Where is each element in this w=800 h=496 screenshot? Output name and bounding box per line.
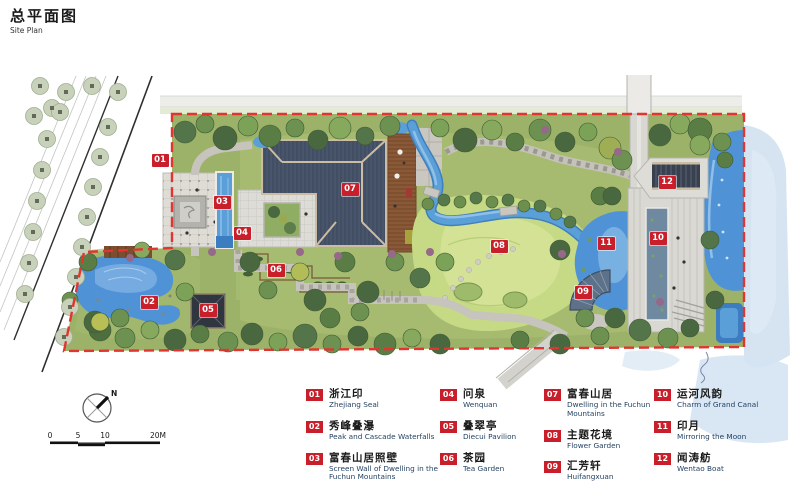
legend-labels: 秀峰叠瀑Peak and Cascade Waterfalls bbox=[329, 420, 434, 442]
legend-labels: 富春山居Dwelling in the Fuchun Mountains bbox=[567, 388, 654, 419]
legend-labels: 印月Mirroring the Moon bbox=[677, 420, 746, 442]
legend-label-en: Wentao Boat bbox=[677, 465, 724, 474]
scale-tick-20m: 20M bbox=[150, 431, 166, 440]
legend-label-en: Peak and Cascade Waterfalls bbox=[329, 433, 434, 442]
legend-item-03: 03富春山居照壁Screen Wall of Dwelling in the F… bbox=[306, 452, 440, 483]
legend-item-07: 07富春山居Dwelling in the Fuchun Mountains bbox=[544, 388, 654, 419]
plan-marker-11: 11 bbox=[598, 237, 615, 250]
scale-bar: 0 5 10 20M bbox=[48, 431, 166, 446]
legend: 01浙江印Zhejiang Seal02秀峰叠瀑Peak and Cascade… bbox=[306, 388, 782, 492]
legend-label-en: Huifangxuan bbox=[567, 473, 613, 482]
legend-label-zh: 印月 bbox=[677, 420, 746, 432]
legend-item-02: 02秀峰叠瀑Peak and Cascade Waterfalls bbox=[306, 420, 440, 442]
plan-marker-05: 05 bbox=[200, 304, 217, 317]
plan-marker-06: 06 bbox=[268, 264, 285, 277]
legend-number-badge: 02 bbox=[306, 421, 323, 433]
plaza-east bbox=[628, 188, 704, 332]
legend-column-2: 04问泉Wenquan05叠翠亭Diecui Pavilion06茶园Tea G… bbox=[440, 388, 544, 492]
legend-label-zh: 富春山居照壁 bbox=[329, 452, 440, 464]
plan-marker-10: 10 bbox=[650, 232, 667, 245]
legend-number-badge: 01 bbox=[306, 389, 323, 401]
legend-label-zh: 汇芳轩 bbox=[567, 460, 613, 472]
legend-label-en: Screen Wall of Dwelling in the Fuchun Mo… bbox=[329, 465, 440, 483]
legend-label-en: Tea Garden bbox=[463, 465, 504, 474]
legend-labels: 闻涛舫Wentao Boat bbox=[677, 452, 724, 474]
plan-marker-01: 01 bbox=[152, 154, 169, 167]
legend-number-badge: 12 bbox=[654, 453, 671, 465]
legend-label-zh: 运河风韵 bbox=[677, 388, 758, 400]
legend-labels: 问泉Wenquan bbox=[463, 388, 497, 410]
legend-label-zh: 秀峰叠瀑 bbox=[329, 420, 434, 432]
legend-label-en: Charm of Grand Canal bbox=[677, 401, 758, 410]
legend-label-zh: 主题花境 bbox=[567, 429, 620, 441]
legend-column-4: 10运河风韵Charm of Grand Canal11印月Mirroring … bbox=[654, 388, 782, 492]
legend-labels: 主题花境Flower Garden bbox=[567, 429, 620, 451]
legend-column-1: 01浙江印Zhejiang Seal02秀峰叠瀑Peak and Cascade… bbox=[306, 388, 440, 492]
plan-marker-07: 07 bbox=[342, 183, 359, 196]
plan-marker-12: 12 bbox=[659, 176, 676, 189]
legend-number-badge: 09 bbox=[544, 461, 561, 473]
legend-label-zh: 浙江印 bbox=[329, 388, 379, 400]
legend-item-11: 11印月Mirroring the Moon bbox=[654, 420, 782, 442]
legend-label-en: Dwelling in the Fuchun Mountains bbox=[567, 401, 654, 419]
legend-label-zh: 问泉 bbox=[463, 388, 497, 400]
legend-item-08: 08主题花境Flower Garden bbox=[544, 429, 654, 451]
legend-number-badge: 07 bbox=[544, 389, 561, 401]
legend-item-06: 06茶园Tea Garden bbox=[440, 452, 544, 474]
scale-tick-0: 0 bbox=[48, 431, 53, 440]
scale-tick-5: 5 bbox=[76, 431, 81, 440]
legend-labels: 富春山居照壁Screen Wall of Dwelling in the Fuc… bbox=[329, 452, 440, 483]
plan-marker-08: 08 bbox=[491, 240, 508, 253]
legend-item-05: 05叠翠亭Diecui Pavilion bbox=[440, 420, 544, 442]
legend-labels: 叠翠亭Diecui Pavilion bbox=[463, 420, 516, 442]
legend-number-badge: 05 bbox=[440, 421, 457, 433]
legend-number-badge: 04 bbox=[440, 389, 457, 401]
legend-number-badge: 11 bbox=[654, 421, 671, 433]
legend-label-zh: 茶园 bbox=[463, 452, 504, 464]
plan-marker-09: 09 bbox=[575, 286, 592, 299]
legend-number-badge: 06 bbox=[440, 453, 457, 465]
water-feature-screen-wall bbox=[216, 172, 233, 248]
site-plan-page: 总平面图 Site Plan bbox=[0, 0, 800, 496]
legend-column-3: 07富春山居Dwelling in the Fuchun Mountains08… bbox=[544, 388, 654, 492]
legend-label-en: Diecui Pavilion bbox=[463, 433, 516, 442]
plan-marker-03: 03 bbox=[214, 196, 231, 209]
legend-label-zh: 富春山居 bbox=[567, 388, 654, 400]
legend-label-zh: 闻涛舫 bbox=[677, 452, 724, 464]
plan-marker-04: 04 bbox=[234, 227, 251, 240]
legend-item-04: 04问泉Wenquan bbox=[440, 388, 544, 410]
legend-item-09: 09汇芳轩Huifangxuan bbox=[544, 460, 654, 482]
legend-labels: 浙江印Zhejiang Seal bbox=[329, 388, 379, 410]
legend-label-en: Mirroring the Moon bbox=[677, 433, 746, 442]
legend-labels: 运河风韵Charm of Grand Canal bbox=[677, 388, 758, 410]
legend-item-10: 10运河风韵Charm of Grand Canal bbox=[654, 388, 782, 410]
plan-marker-02: 02 bbox=[141, 296, 158, 309]
legend-label-en: Flower Garden bbox=[567, 442, 620, 451]
legend-item-01: 01浙江印Zhejiang Seal bbox=[306, 388, 440, 410]
compass: N bbox=[83, 389, 117, 422]
legend-item-12: 12闻涛舫Wentao Boat bbox=[654, 452, 782, 474]
road-northeast bbox=[627, 75, 651, 114]
compass-north-label: N bbox=[111, 389, 117, 398]
road-north bbox=[160, 96, 742, 114]
legend-number-badge: 08 bbox=[544, 430, 561, 442]
legend-label-en: Wenquan bbox=[463, 401, 497, 410]
legend-label-zh: 叠翠亭 bbox=[463, 420, 516, 432]
legend-label-en: Zhejiang Seal bbox=[329, 401, 379, 410]
legend-number-badge: 03 bbox=[306, 453, 323, 465]
legend-number-badge: 10 bbox=[654, 389, 671, 401]
scale-tick-10: 10 bbox=[100, 431, 110, 440]
legend-labels: 茶园Tea Garden bbox=[463, 452, 504, 474]
legend-labels: 汇芳轩Huifangxuan bbox=[567, 460, 613, 482]
